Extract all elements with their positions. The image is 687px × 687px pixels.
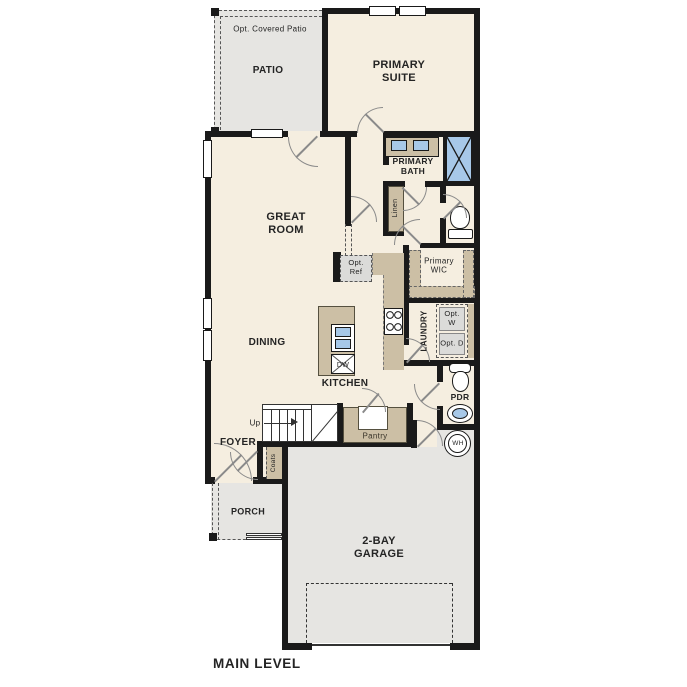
opt-washer-label: Opt. W	[440, 310, 464, 328]
patio-note-label: Opt. Covered Patio	[215, 24, 325, 33]
primary-suite-label: PRIMARY SUITE	[363, 59, 435, 85]
up-arrow	[264, 423, 292, 424]
window	[203, 330, 212, 361]
porch-dashed-left-inner	[218, 483, 219, 540]
patio-dashed-top-outer	[214, 10, 322, 11]
porch-step	[246, 537, 282, 540]
pantry-label: Pantry	[363, 431, 388, 440]
coats-label: Coats	[270, 454, 278, 472]
cased-opening	[345, 224, 346, 256]
great-room-label: GREAT ROOM	[256, 211, 316, 237]
floor-plan: Opt. Covered Patio PATIO PRIMARY SUITE P…	[0, 0, 687, 687]
foyer-label: FOYER	[220, 437, 256, 449]
up-arrowhead	[291, 418, 298, 426]
pdr-sink-basin	[452, 408, 468, 419]
toilet-icon	[448, 229, 473, 239]
dining-label: DINING	[249, 337, 286, 349]
patio-dashed-top-inner	[220, 16, 322, 17]
porch-label: PORCH	[231, 507, 265, 518]
opt-dryer-label: Opt. D	[440, 340, 464, 349]
garage-door-line	[312, 644, 450, 646]
garage-apron-dashed	[306, 583, 307, 643]
wic-shelf	[463, 250, 474, 298]
wall	[420, 243, 475, 248]
porch-step	[246, 533, 282, 536]
page-title: MAIN LEVEL	[213, 656, 301, 672]
laundry-cabinet	[468, 304, 474, 358]
window	[203, 140, 212, 178]
window	[203, 298, 212, 329]
garage-apron-dashed	[306, 583, 452, 584]
kitchen-label: KITCHEN	[322, 378, 369, 390]
window	[251, 129, 283, 138]
laundry-label: LAUNDRY	[419, 311, 428, 352]
porch-dashed-left	[212, 483, 213, 540]
primary-bath-label: PRIMARY BATH	[384, 156, 442, 176]
stairs-treads	[264, 410, 312, 441]
wall	[437, 366, 443, 382]
stove-icon	[384, 308, 403, 335]
wall	[450, 643, 480, 650]
toilet-icon	[452, 371, 469, 392]
wall	[282, 441, 288, 650]
linen-label: Linen	[392, 199, 400, 218]
shower-icon	[443, 133, 475, 185]
island-sink-basin	[335, 339, 351, 349]
vanity-sink-icon	[391, 140, 407, 151]
pdr-label: PDR	[451, 392, 470, 402]
kitchen-counter	[372, 253, 404, 275]
wall	[283, 643, 312, 650]
primary-wic-label: Primary WIC	[416, 257, 462, 276]
wall	[409, 298, 475, 303]
porch-corner-mark	[209, 533, 217, 541]
window	[399, 6, 426, 16]
wall	[474, 8, 480, 650]
water-heater-label: WH	[452, 440, 463, 448]
patio-corner-mark-top	[211, 8, 219, 16]
cased-opening	[351, 224, 352, 256]
patio-label: PATIO	[253, 65, 284, 77]
island-sink-basin	[335, 327, 351, 337]
wall	[327, 131, 357, 137]
garage-apron-dashed	[452, 583, 453, 643]
patio-dashed-left-inner	[220, 16, 221, 135]
opt-ref-label: Opt. Ref	[343, 259, 369, 277]
window	[369, 6, 396, 16]
dishwasher-label: DW	[337, 362, 349, 370]
garage-label: 2-BAY GARAGE	[344, 535, 414, 561]
vanity-sink-icon	[413, 140, 429, 151]
up-label: Up	[250, 418, 261, 427]
